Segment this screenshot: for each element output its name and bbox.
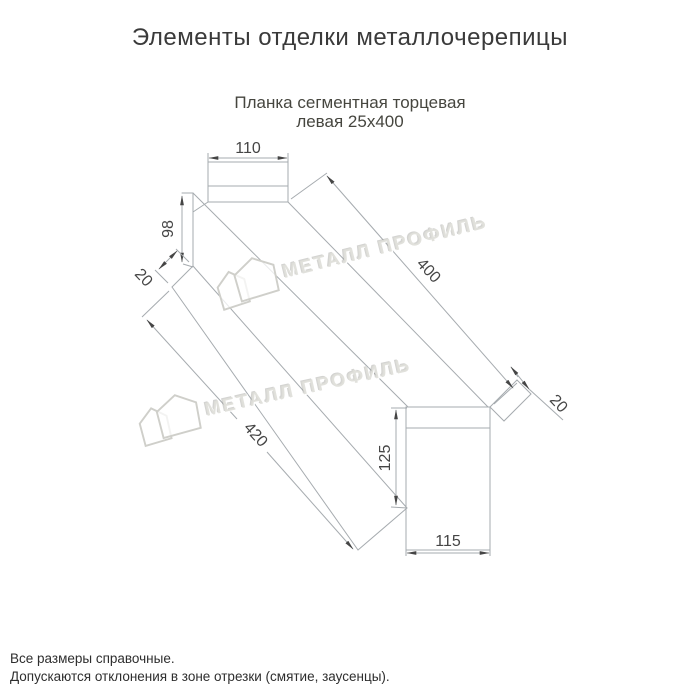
top-end-section [208,162,288,202]
dim-top-fold [155,249,189,283]
end-fold-flange [490,380,531,421]
part-outline [172,162,531,550]
body-front-line [193,266,407,508]
footnotes: Все размеры справочные. Допускаются откл… [10,650,390,685]
dim-label-400: 400 [413,255,444,286]
body-ridge-line [193,193,408,407]
body-hem-line [172,287,358,550]
footnote-line-1: Все размеры справочные. [10,651,175,666]
dim-label-110: 110 [235,140,261,157]
dim-label-125: 125 [377,445,394,472]
dim-label-115: 115 [435,533,461,550]
technical-drawing: 110 98 20 400 420 125 115 20 [0,0,700,700]
body-bottom-end-edge [358,508,407,550]
footnote-line-2: Допускаются отклонения в зоне отрезки (с… [10,669,390,684]
bottom-end-section [406,407,490,550]
dim-label-20-top: 20 [131,266,156,291]
dim-label-98: 98 [160,220,177,238]
top-end-connector [193,202,208,212]
top-fold-edge [172,266,193,287]
dim-label-20-end: 20 [546,392,571,417]
body-top-line [288,202,488,407]
dim-label-420: 420 [240,419,271,450]
dim-length-front [142,291,353,549]
dim-length-back [291,173,517,404]
